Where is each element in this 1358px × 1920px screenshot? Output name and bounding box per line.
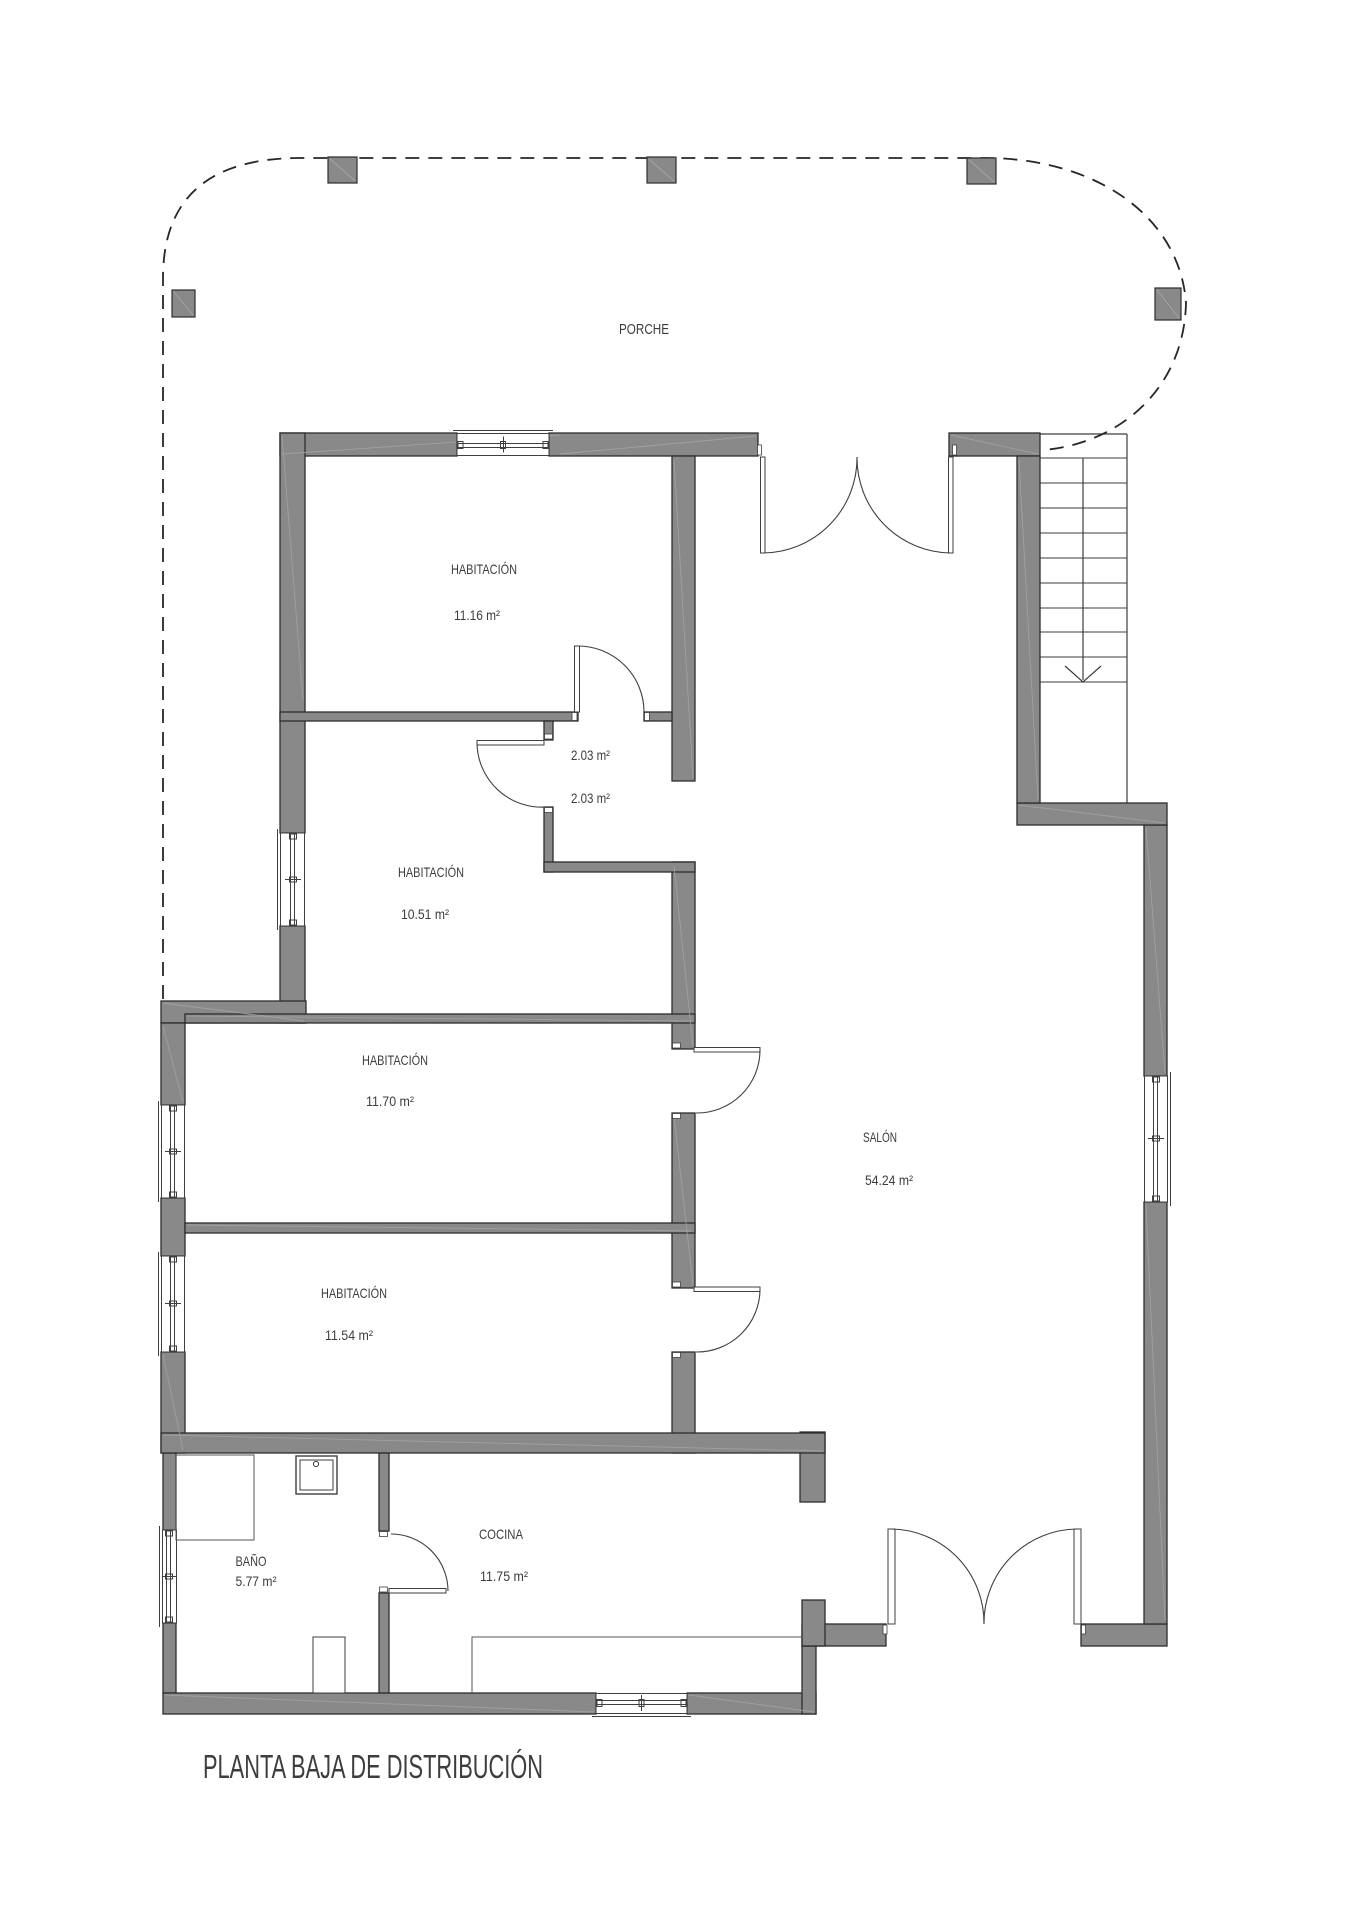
svg-text:HABITACIÓN: HABITACIÓN	[321, 1285, 387, 1301]
svg-text:11.75 m²: 11.75 m²	[480, 1568, 528, 1584]
svg-text:5.77 m²: 5.77 m²	[236, 1573, 277, 1589]
svg-text:SALÓN: SALÓN	[863, 1129, 897, 1145]
svg-text:11.16 m²: 11.16 m²	[454, 607, 500, 623]
svg-text:2.03 m²: 2.03 m²	[571, 790, 610, 806]
svg-text:HABITACIÓN: HABITACIÓN	[362, 1052, 428, 1068]
svg-text:PLANTA BAJA DE DISTRIBUCIÓN: PLANTA BAJA DE DISTRIBUCIÓN	[203, 1748, 543, 1785]
svg-text:11.70 m²: 11.70 m²	[366, 1093, 414, 1109]
svg-text:COCINA: COCINA	[479, 1526, 524, 1542]
svg-text:HABITACIÓN: HABITACIÓN	[398, 864, 464, 880]
svg-text:BAÑO: BAÑO	[236, 1553, 267, 1569]
svg-text:54.24 m²: 54.24 m²	[865, 1172, 913, 1188]
svg-text:10.51 m²: 10.51 m²	[401, 906, 449, 922]
svg-text:11.54 m²: 11.54 m²	[325, 1327, 373, 1343]
svg-text:PORCHE: PORCHE	[619, 321, 669, 338]
svg-text:2.03 m²: 2.03 m²	[571, 747, 610, 763]
svg-text:HABITACIÓN: HABITACIÓN	[451, 561, 517, 577]
